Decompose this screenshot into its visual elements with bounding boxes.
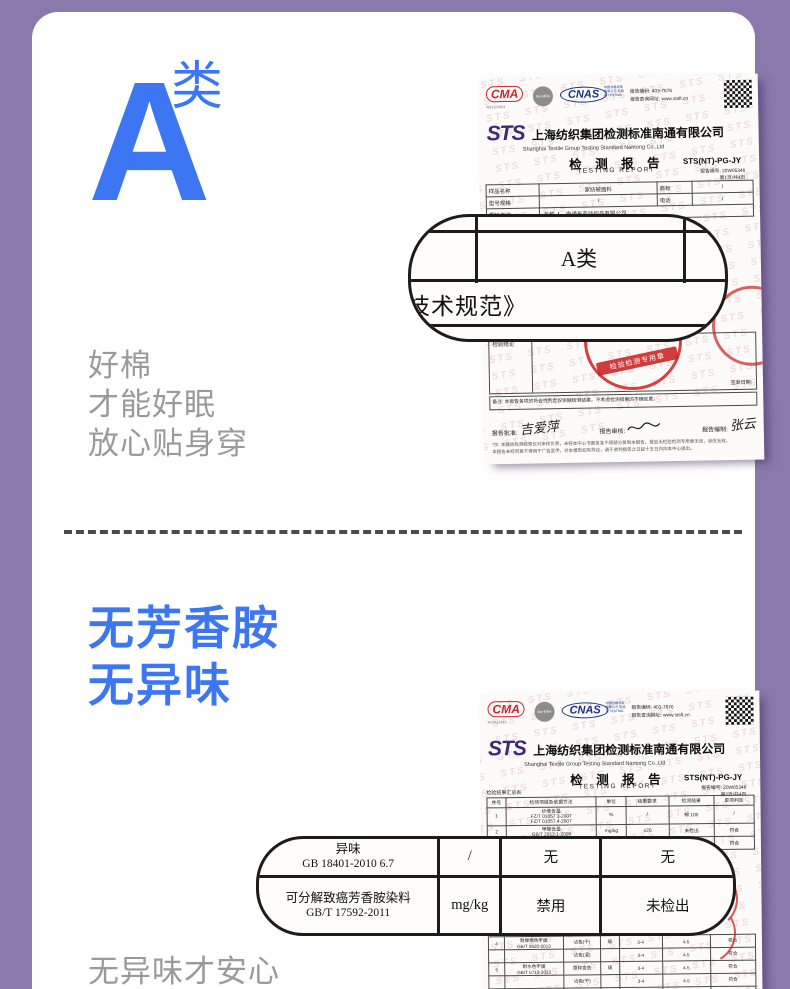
table-cell: %	[597, 806, 627, 824]
org-name: 上海纺织集团检测标准南通有限公司	[533, 742, 725, 758]
table-cell: /	[692, 180, 754, 193]
table-cell: /	[626, 806, 669, 824]
magnifier-callout-odor: 异味 GB 18401-2010 6.7 / 无 无 可分解致癌芳香胺染料 GB…	[256, 836, 736, 936]
approver-label: 报告批准:	[492, 428, 518, 437]
callout-line	[683, 214, 686, 283]
report-code: STS(NT)-PG-JY	[684, 773, 742, 783]
table-cell: 符合	[714, 823, 754, 836]
table-cell	[505, 949, 564, 963]
table-cell: 3-4	[619, 948, 662, 961]
table-cell: 3-4	[619, 961, 662, 974]
grade-a-suffix: 类	[171, 44, 223, 119]
ilac-mra-logo-icon: ilac-MRA	[534, 702, 554, 722]
table-cell: 样品名称	[486, 184, 540, 197]
org-name-en: Shanghai Textile Group Testing Standard …	[524, 760, 754, 768]
qr-code-icon	[724, 80, 752, 108]
table-cell: 沾色(干)	[564, 975, 602, 988]
table-cell: 3-4	[619, 935, 662, 948]
table-cell: 无	[501, 838, 601, 877]
heading-line: 无异味	[88, 657, 280, 714]
table-cell	[489, 976, 505, 989]
spec-text: 技术规范》	[408, 287, 527, 321]
issue-date-label: 签发日期:	[731, 379, 753, 386]
certification-logos: CMA W131126X3 ilac-MRA CNAS 中国合格评定 国家认可 …	[487, 697, 753, 736]
dashed-divider	[64, 530, 742, 534]
org-row: STS 上海纺织集团检测标准南通有限公司 Shanghai Textile Gr…	[488, 735, 754, 769]
callout-line	[408, 324, 728, 327]
table-cell: 4-5	[662, 974, 710, 988]
stamp-band-text: 检验检测专用章	[596, 346, 679, 376]
org-name: 上海纺织集团检测标准南通有限公司	[532, 125, 724, 142]
item-standard: GB 18401-2010 6.7	[259, 857, 437, 871]
report-header: CMA W131126X3 ilac-MRA CNAS 中国合格评定 国家认可 …	[478, 74, 760, 181]
reviewer-label: 报告审核:	[599, 426, 625, 435]
table-cell: 型号规格	[486, 196, 540, 209]
table-cell: 符合	[710, 973, 756, 986]
report-title-en: TESTING REPORT	[578, 783, 656, 791]
table-cell: 沾色(湿)	[563, 949, 601, 962]
tagline-line: 才能好眠	[88, 385, 248, 424]
signature-row: 报告批准: 吉爱萍 报告审核: 报告编制: 张云	[491, 407, 755, 438]
table-cell	[505, 975, 564, 989]
table-cell: 电话	[657, 193, 692, 206]
cnas-logo-icon: CNAS	[561, 702, 608, 718]
cma-logo-icon: CMA	[486, 86, 524, 103]
cnas-caption: 中国合格评定 国家认可 实验室 TESTING	[604, 85, 626, 98]
signature-scribble-icon	[627, 420, 661, 435]
grade-value: A类	[475, 243, 683, 273]
tagline-line: 放心贴身穿	[88, 424, 248, 463]
table-cell: 4	[488, 937, 504, 950]
cma-serial: W131126X3	[486, 105, 505, 109]
summary-label: 检验结果汇总表	[486, 789, 521, 796]
callout-table: 异味 GB 18401-2010 6.7 / 无 无 可分解致癌芳香胺染料 GB…	[256, 836, 736, 936]
table-cell: 未检出	[669, 824, 715, 837]
table-cell: 异味 GB 18401-2010 6.7	[258, 838, 439, 877]
approver-name: 吉爱萍	[519, 415, 560, 438]
table-cell	[601, 949, 620, 962]
heading-line: 无芳香胺	[88, 600, 280, 657]
table-cell	[489, 950, 505, 963]
report-title-row: 检 测 报 告 TESTING REPORT STS(NT)-PG-JY 报告编…	[487, 151, 753, 182]
cma-logo-icon: CMA	[487, 701, 524, 717]
report-url-line: 报告查询网址: www.stsft.cn	[632, 712, 690, 720]
table-cell: /	[439, 838, 501, 877]
section2-heading: 无芳香胺 无异味	[88, 600, 280, 714]
item-name: 可分解致癌芳香胺染料	[259, 891, 437, 906]
table-header-cell: 单项判定	[714, 795, 754, 805]
callout-line	[408, 230, 728, 233]
sts-logo: STS	[488, 737, 526, 760]
approver-signature: 报告批准: 吉爱萍	[492, 417, 559, 437]
report-code: STS(NT)-PG-JY	[683, 156, 741, 166]
table-header-cell: 检测结果	[668, 796, 713, 806]
qr-code-icon	[725, 697, 753, 725]
report-title-row: 检 测 报 告 TESTING REPORT STS(NT)-PG-JY 报告编…	[488, 768, 754, 797]
table-cell: 棉 100	[669, 806, 715, 824]
table-cell: /	[692, 192, 754, 205]
report-title-en: TESTING REPORT	[577, 166, 655, 174]
compiler-name: 张云	[729, 413, 757, 435]
report-meta: 报告编码: 403-7876 报告查询网址: www.stsft.cn	[630, 88, 688, 104]
table-cell: 3-4	[620, 974, 663, 987]
table-cell: 可分解致癌芳香胺染料 GB/T 17592-2011	[258, 876, 439, 934]
compiler-label: 报告编制:	[702, 424, 728, 433]
table-header-cell: 结果要求	[626, 796, 669, 806]
table-cell: 5	[489, 963, 505, 976]
item-name: 异味	[259, 842, 437, 857]
table-cell: mg/kg	[439, 876, 501, 934]
certification-logos: CMA W131126X3 ilac-MRA CNAS 中国合格评定 国家认可 …	[486, 80, 753, 121]
table-header-cell: 单位	[596, 796, 625, 806]
magnifier-callout-grade: A类 技术规范》	[408, 214, 728, 342]
conclusion-cell: 检验结论	[489, 337, 533, 394]
tagline: 好棉 才能好眠 放心贴身穿	[88, 346, 248, 463]
report-meta: 报告编码: 403-7876 报告查询网址: www.stsft.cn	[631, 704, 689, 720]
product-detail-page: A 类 好棉 才能好眠 放心贴身穿 STS STS STS STS STS ST…	[0, 0, 790, 989]
table-cell: 级	[601, 936, 620, 949]
callout-line	[408, 279, 728, 282]
table-cell: 1	[487, 808, 506, 826]
fine-print: *仅: 本报告检测结果仅对来样负责，未经本中心书面批准不得部分复制本报告，报告无…	[492, 438, 756, 456]
item-standard: GB/T 17592-2011	[259, 906, 437, 920]
compiler-signature: 报告编制: 张云	[702, 414, 756, 434]
cma-serial: W131126X3	[488, 720, 507, 724]
tagline-line: 好棉	[88, 346, 248, 385]
table-cell: 原样变色	[563, 962, 601, 975]
cnas-caption: 中国合格评定 国家认可 实验室 TESTING	[605, 701, 627, 714]
table-cell: 未检出	[601, 876, 735, 934]
table-cell: 纤维含量 FZ/T 01057.3-2007 FZ/T 01057.4-2007	[506, 807, 597, 826]
table-cell: 级	[601, 962, 620, 975]
org-row: STS 上海纺织集团检测标准南通有限公司 Shanghai Textile Gr…	[486, 118, 753, 154]
table-cell	[601, 975, 620, 988]
table-cell: 沾色(干)	[563, 936, 601, 949]
reviewer-signature: 报告审核:	[599, 420, 661, 435]
report-url-line: 报告查询网址: www.stsft.cn	[630, 95, 688, 104]
table-cell: 耐水色牢度 GB/T 5713-2013	[505, 962, 564, 976]
table-cell: 耐摩擦色牢度 GB/T 3920-2013	[504, 936, 563, 950]
table-cell: 商标	[657, 181, 692, 194]
table-cell: 无	[601, 838, 735, 877]
table-cell: 禁用	[501, 876, 601, 934]
ilac-mra-logo-icon: ilac-MRA	[533, 86, 553, 106]
table-cell: /	[714, 805, 754, 823]
report-header: CMA W131126X3 ilac-MRA CNAS 中国合格评定 国家认可 …	[479, 691, 760, 796]
table-cell: 符合	[710, 960, 756, 973]
cnas-logo-icon: CNAS	[560, 86, 607, 103]
sts-logo: STS	[486, 122, 524, 146]
section2-footer: 无异味才安心	[88, 946, 280, 989]
table-header-cell: 序号	[487, 798, 506, 808]
